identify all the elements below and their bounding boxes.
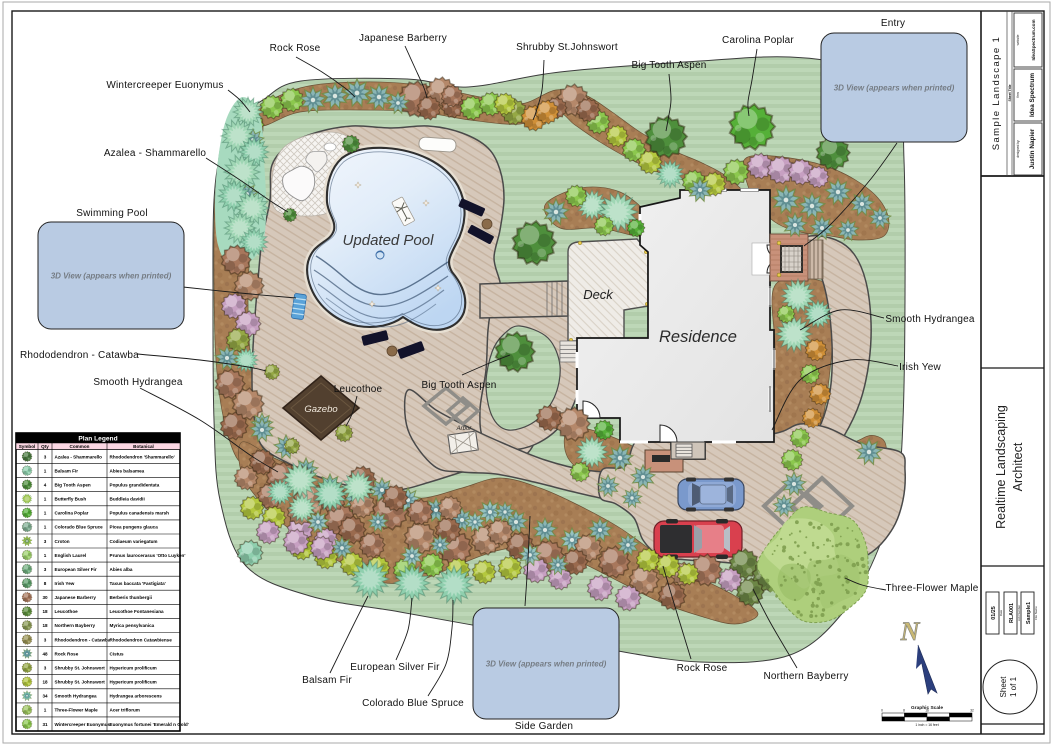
svg-text:3D View (appears when printed): 3D View (appears when printed) (51, 272, 172, 281)
svg-text:Big Tooth Aspen: Big Tooth Aspen (631, 60, 706, 71)
svg-text:Northern Bayberry: Northern Bayberry (763, 671, 848, 682)
svg-text:Shrubby St. Johnswort: Shrubby St. Johnswort (55, 666, 106, 671)
svg-text:3: 3 (44, 567, 47, 572)
svg-text:Rhododendron Catawbiense: Rhododendron Catawbiense (110, 637, 173, 642)
svg-text:01/25: 01/25 (991, 606, 997, 620)
svg-text:Japanese Barberry: Japanese Barberry (55, 595, 97, 600)
svg-text:Colorado Blue Spruce: Colorado Blue Spruce (362, 698, 464, 709)
svg-text:RLA001: RLA001 (1009, 603, 1015, 623)
svg-text:4: 4 (44, 483, 47, 488)
svg-text:Abies balsamea: Abies balsamea (110, 468, 145, 473)
svg-text:Symbol: Symbol (19, 444, 36, 449)
svg-text:Justin Napier: Justin Napier (1029, 128, 1036, 169)
svg-text:3: 3 (44, 454, 47, 459)
svg-text:Shrubby St. Johnswort: Shrubby St. Johnswort (55, 680, 106, 685)
svg-text:Big Tooth Aspen: Big Tooth Aspen (55, 483, 91, 488)
svg-text:Irish Yew: Irish Yew (55, 581, 75, 586)
svg-text:Job Number: Job Number (1017, 605, 1021, 621)
svg-text:Realtime Landscaping: Realtime Landscaping (994, 405, 1008, 529)
svg-text:Plan Legend: Plan Legend (78, 436, 117, 443)
svg-text:Taxus baccata 'Fastigiata': Taxus baccata 'Fastigiata' (110, 581, 166, 586)
svg-text:Sample Landscape 1: Sample Landscape 1 (991, 36, 1002, 150)
svg-text:Rock Rose: Rock Rose (677, 663, 728, 674)
svg-text:Irish Yew: Irish Yew (899, 362, 941, 373)
svg-text:Hypericum prolificum: Hypericum prolificum (110, 666, 157, 671)
svg-text:Colorado Blue Spruce: Colorado Blue Spruce (55, 525, 104, 530)
svg-text:1: 1 (44, 553, 47, 558)
svg-text:Three-Flower Maple: Three-Flower Maple (885, 583, 978, 594)
svg-text:Architect: Architect (1011, 442, 1025, 491)
svg-text:Wintercreeper Euonymus: Wintercreeper Euonymus (55, 722, 111, 727)
svg-text:Azalea - Shammarello: Azalea - Shammarello (104, 148, 207, 159)
svg-text:Cistus: Cistus (110, 651, 124, 656)
svg-text:1 inch = 16 feet: 1 inch = 16 feet (915, 723, 938, 727)
svg-text:Big Tooth Aspen: Big Tooth Aspen (421, 380, 496, 391)
svg-text:Sheet: Sheet (999, 676, 1008, 698)
svg-text:Entry: Entry (881, 18, 905, 29)
svg-text:Gazebo: Gazebo (304, 404, 337, 415)
svg-text:Balsam Fir: Balsam Fir (55, 468, 79, 473)
svg-text:Deck: Deck (583, 287, 614, 302)
svg-text:1: 1 (44, 708, 47, 713)
svg-text:18: 18 (42, 623, 48, 628)
svg-text:Prunus laurocerasus 'Otto Luyk: Prunus laurocerasus 'Otto Luyken' (110, 553, 186, 558)
svg-text:16: 16 (925, 709, 929, 713)
svg-text:Smooth Hydrangea: Smooth Hydrangea (93, 377, 183, 388)
svg-text:8: 8 (903, 709, 905, 713)
svg-text:32: 32 (970, 709, 974, 713)
svg-text:Wintercreeper Euonymus: Wintercreeper Euonymus (106, 80, 223, 91)
svg-text:1: 1 (44, 497, 47, 502)
svg-text:Rhododendron - Catawba: Rhododendron - Catawba (20, 350, 139, 361)
svg-text:3D View (appears when printed): 3D View (appears when printed) (486, 660, 607, 669)
svg-text:Date: Date (999, 610, 1003, 617)
svg-text:website: website (1016, 34, 1020, 45)
svg-text:1: 1 (44, 511, 47, 516)
svg-text:Three-Flower Maple: Three-Flower Maple (55, 708, 99, 713)
svg-text:Buddleia davidii: Buddleia davidii (110, 497, 145, 502)
svg-text:Berberis thunbergii: Berberis thunbergii (110, 595, 152, 600)
svg-text:Rhododendron 'Shammarello': Rhododendron 'Shammarello' (110, 454, 175, 459)
svg-text:Butterfly Bush: Butterfly Bush (55, 497, 87, 502)
svg-text:Side Garden: Side Garden (515, 721, 573, 732)
svg-text:Swimming Pool: Swimming Pool (76, 208, 148, 219)
svg-text:Northern Bayberry: Northern Bayberry (55, 623, 96, 628)
svg-text:Smooth Hydrangea: Smooth Hydrangea (885, 314, 975, 325)
svg-text:Rock Rose: Rock Rose (270, 43, 321, 54)
svg-text:Updated Pool: Updated Pool (343, 232, 435, 249)
svg-text:1: 1 (44, 468, 47, 473)
svg-text:Sample1: Sample1 (1026, 602, 1032, 624)
svg-text:3D View (appears when printed): 3D View (appears when printed) (834, 84, 955, 93)
svg-text:European Silver Fir: European Silver Fir (350, 662, 440, 673)
svg-text:Balsam Fir: Balsam Fir (302, 675, 352, 686)
svg-text:Croton: Croton (55, 539, 70, 544)
svg-text:Azalea - Shammarello: Azalea - Shammarello (55, 454, 103, 459)
svg-text:Leucothoe: Leucothoe (55, 609, 79, 614)
svg-text:Carolina Poplar: Carolina Poplar (722, 35, 794, 46)
svg-text:18: 18 (42, 680, 48, 685)
svg-text:Smooth Hydrangea: Smooth Hydrangea (55, 694, 98, 699)
svg-text:Leucothoe Fontanesiana: Leucothoe Fontanesiana (110, 609, 165, 614)
svg-text:Common: Common (70, 444, 90, 449)
svg-text:30: 30 (42, 595, 48, 600)
svg-text:Botanical: Botanical (133, 444, 154, 449)
svg-text:European Silver Fir: European Silver Fir (55, 567, 97, 572)
svg-text:0: 0 (881, 709, 883, 713)
svg-text:Acer triflorum: Acer triflorum (110, 708, 140, 713)
svg-text:Rhododendron - Catawba: Rhododendron - Catawba (55, 637, 111, 642)
svg-text:Euonymus fortunei 'Emerald n G: Euonymus fortunei 'Emerald n Gold' (110, 722, 189, 727)
svg-text:48: 48 (42, 651, 48, 656)
svg-text:Japanese Barberry: Japanese Barberry (359, 33, 447, 44)
svg-text:Leucothoe: Leucothoe (334, 384, 383, 395)
svg-text:Picea pungens glauca: Picea pungens glauca (110, 525, 159, 530)
svg-text:Rock Rose: Rock Rose (55, 651, 79, 656)
svg-text:Idea Spectrum: Idea Spectrum (1029, 73, 1036, 117)
svg-text:Hypericum prolificum: Hypericum prolificum (110, 680, 157, 685)
svg-text:34: 34 (42, 694, 48, 699)
svg-text:Abies alba: Abies alba (110, 567, 133, 572)
svg-text:1 of 1: 1 of 1 (1009, 676, 1018, 697)
svg-text:English Laurel: English Laurel (55, 553, 87, 558)
svg-text:Codiaeum variegatum: Codiaeum variegatum (110, 539, 158, 544)
svg-text:Arbor: Arbor (456, 426, 473, 432)
svg-text:3: 3 (44, 539, 47, 544)
svg-text:IdeaSpectrum.com: IdeaSpectrum.com (1031, 19, 1036, 60)
svg-text:18: 18 (42, 609, 48, 614)
svg-text:Residence: Residence (659, 328, 737, 346)
svg-text:1: 1 (44, 525, 47, 530)
svg-text:Sheet Title: Sheet Title (1008, 84, 1012, 101)
svg-text:8: 8 (44, 581, 47, 586)
svg-text:designed by: designed by (1016, 140, 1020, 158)
svg-text:3: 3 (44, 637, 47, 642)
svg-text:File Name: File Name (1034, 606, 1038, 620)
svg-text:Hydrangea arborescens: Hydrangea arborescens (110, 694, 163, 699)
svg-text:Shrubby St.Johnswort: Shrubby St.Johnswort (516, 42, 618, 53)
svg-text:firm: firm (1016, 92, 1020, 98)
svg-text:N: N (900, 617, 921, 646)
svg-text:3: 3 (44, 666, 47, 671)
svg-text:Populus grandidentata: Populus grandidentata (110, 483, 160, 488)
svg-text:Qty: Qty (41, 444, 49, 449)
svg-text:Populus canadensis marsh: Populus canadensis marsh (110, 511, 170, 516)
svg-text:Carolina Poplar: Carolina Poplar (55, 511, 89, 516)
svg-text:Myrica pensylvanica: Myrica pensylvanica (110, 623, 155, 628)
svg-text:31: 31 (42, 722, 48, 727)
